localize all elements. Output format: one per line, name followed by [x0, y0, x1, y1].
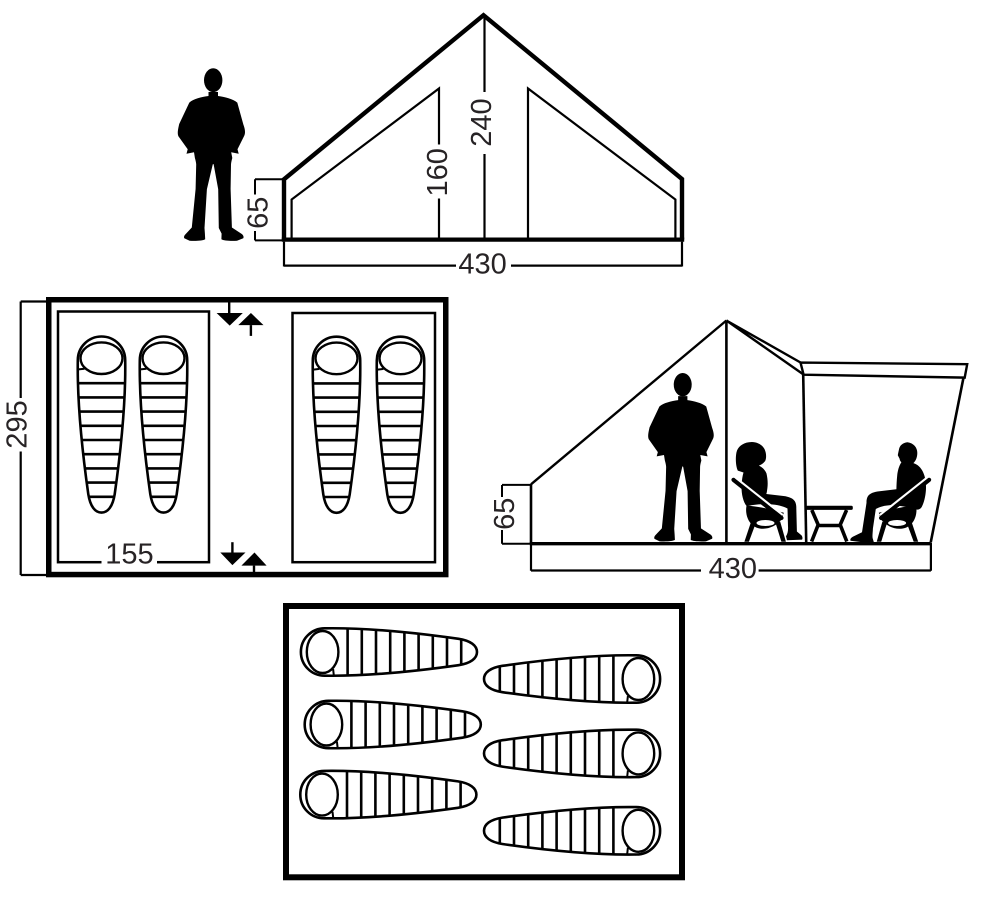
svg-text:430: 430 [458, 249, 506, 281]
svg-text:155: 155 [105, 539, 153, 571]
svg-text:65: 65 [242, 197, 274, 229]
svg-text:240: 240 [466, 98, 498, 146]
svg-text:430: 430 [709, 553, 757, 585]
svg-text:295: 295 [2, 400, 34, 448]
svg-text:65: 65 [489, 498, 521, 530]
svg-text:160: 160 [422, 148, 454, 196]
